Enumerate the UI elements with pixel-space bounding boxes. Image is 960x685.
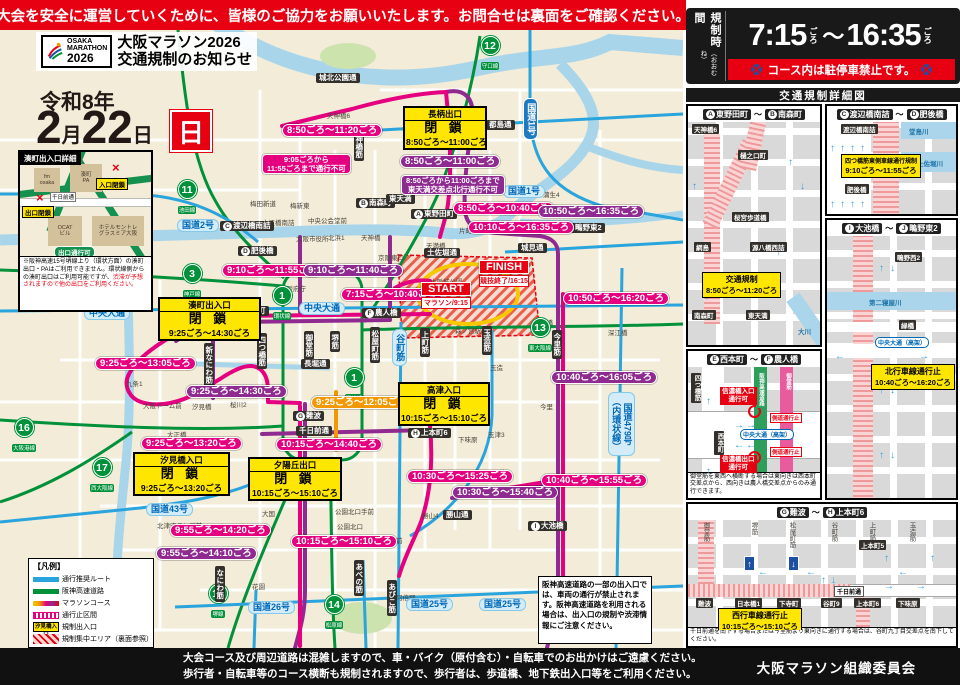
detail-card-namba-uehommachi: G難波～H上本町6 ↑ ↓ 御堂筋堺筋松屋町筋谷町筋上町筋玉造筋上本町5千日前通… — [686, 502, 958, 648]
time-badge: 10:50ごろ～16:20ごろ — [563, 292, 669, 305]
route-shield-name: 守口線 — [481, 62, 500, 70]
minor-place-label: 大阪ドーム前 — [143, 400, 182, 410]
minor-place-label: 下味原 — [458, 434, 478, 444]
route-shield-number: 1 — [345, 368, 364, 387]
road-name-label: 都島通 — [486, 120, 515, 130]
route-shield-11: 11池田線 — [175, 180, 199, 217]
closure-box-汐見橋入口: 汐見橋入口閉 鎖9:25ごろ～13:20ごろ — [133, 452, 230, 496]
point-mark-C: C — [223, 222, 232, 231]
card-note: 千日前通を南下する場合または今里筋より東向きに通行する場合は、谷町九丁目交差点を… — [688, 627, 956, 646]
road-name-label: 千日前通 — [296, 426, 332, 436]
regulation-time-label: 規制時間 （おおむね） — [689, 11, 726, 81]
road-name-label: H上本町6 — [408, 428, 451, 438]
route-shield-16: 16大阪港線 — [12, 418, 36, 455]
expressway-note: 阪神高速道路の一部の出入口では、車両の通行が禁止されます。阪神高速道路を利用され… — [538, 576, 652, 644]
direction-arrow-icon: ↑ — [930, 554, 935, 564]
minor-place-label: 梅田新道 — [250, 198, 276, 208]
minatomachi-inset: fm osaka 湊町 PA OCAT ビル ホテルモントレ グラスミア大阪 ×… — [18, 150, 153, 312]
regulation-title: 交通規制 — [706, 274, 777, 285]
road-name-label: D肥後橋 — [238, 246, 277, 256]
direction-arrow-icon: → — [919, 352, 929, 362]
route-shield-number: 17 — [93, 458, 112, 477]
route-shield-number: 12 — [481, 36, 500, 55]
direction-arrow-icon: ↑ — [692, 182, 697, 192]
detail-card-map: 四つ橋筋西本町阪神高速道路御堂筋信濃橋入口 通行可信濃橋出口 通行可側道通行止側… — [688, 367, 820, 476]
closure-time: 9:25ごろ～14:30ごろ — [160, 327, 259, 339]
restricted-area-swatch — [33, 634, 59, 644]
direction-arrow-icon: → — [916, 582, 926, 592]
time-badge: 10:50ごろ～16:35ごろ — [538, 205, 644, 218]
direction-arrow-icon: ↑ — [879, 451, 884, 461]
road-name-label: 勝山通 — [443, 510, 472, 520]
road-name-label: 城北公園通 — [316, 73, 360, 83]
card-regulation-box: 北行車線通行止10:40ごろ～16:20ごろ — [871, 364, 955, 390]
time-badge: 10:40ごろ～15:55ごろ — [541, 474, 647, 487]
start-marker: START マラソン/9:15 — [421, 282, 471, 309]
closure-time: 9:25ごろ～13:20ごろ — [135, 482, 228, 494]
time-badge: 8:50ごろから11:00ごろまで 東天満交差点北行通行不可 — [401, 175, 505, 195]
road-name-label: 堺筋 — [330, 331, 340, 352]
minor-place-label: 玉津3 — [488, 429, 505, 439]
direction-arrow-icon: ← — [746, 441, 756, 451]
time-badge: 9:10ごろ～11:40ごろ — [303, 264, 403, 277]
direction-arrow-icon: ← — [898, 568, 908, 578]
card-label: 肥後橋 — [845, 184, 869, 194]
route-name-label: 谷町筋 — [392, 329, 407, 366]
route-shield-17: 17西大阪線 — [90, 458, 114, 495]
direction-arrow-icon: ↓ — [890, 264, 895, 274]
route-shield-1: 1環状線 — [270, 286, 294, 323]
minor-place-label: 深江橋 — [608, 327, 628, 337]
direction-arrow-icon: ← — [734, 441, 744, 451]
road-name-label: 長堀通 — [301, 359, 330, 369]
direction-arrow-icon: ↓ — [890, 451, 895, 461]
detail-card-map: ↑ ↓ 御堂筋堺筋松屋町筋谷町筋上町筋玉造筋上本町5千日前通難波日本橋1下寺町谷… — [688, 520, 956, 630]
card-label: 四つ橋筋 — [691, 373, 701, 403]
card-label: 中央大通（高架） — [875, 337, 929, 348]
point-mark-D: D — [241, 247, 250, 256]
road-name-label: 新なにわ筋 — [204, 343, 214, 387]
direction-arrow-icon: ↓ — [800, 182, 805, 192]
legend-item: マラソンコース — [33, 598, 149, 608]
recommended-route-swatch — [33, 577, 59, 582]
direction-arrow-icon: ↑ — [850, 144, 855, 154]
finish-marker: FINISH 競技終了/16:15 — [479, 260, 529, 287]
regulation-time-panel: 規制時間 （おおむね） 7:15ごろ～16:35ごろ コース内は駐停車禁止です。 — [686, 8, 960, 84]
time-badge: 10:10ごろ～16:35ごろ — [468, 221, 574, 234]
closure-box-長柄出口: 長柄出口閉 鎖8:50ごろ～11:00ごろ — [403, 106, 487, 150]
card-label: 御堂筋 — [783, 371, 793, 392]
detail-card-watanabebashi-higobashi: C渡辺橋南詰～D肥後橋 渡辺橋南詰堂島川土佐堀川肥後橋↑↑↑↑↑↑↑↑四つ橋筋東… — [825, 104, 958, 216]
card-label: 信濃橋入口 通行可 — [720, 387, 757, 405]
direction-arrow-icon: → — [884, 582, 894, 592]
legend-item: 阪神高速道路 — [33, 586, 149, 596]
date-month-unit: 月 — [62, 122, 82, 150]
closure-time: 10:15ごろ～15:10ごろ — [250, 487, 340, 499]
regulation-time-value: 7:15ごろ～16:35ごろ — [726, 11, 957, 59]
time-badge: 9:25ごろ～14:30ごろ — [186, 385, 287, 398]
route-shield-number: 1 — [273, 286, 292, 305]
page-title-line1: 大阪マラソン2026 — [117, 34, 252, 51]
closure-status: 閉 鎖 — [250, 472, 340, 487]
direction-arrow-icon: ← — [835, 352, 845, 362]
route-shield-number: 3 — [183, 264, 202, 283]
page-header: OSAKA MARATHON 2026 大阪マラソン2026 交通規制のお知らせ — [36, 32, 257, 71]
route-name-label: 国道1号 — [523, 98, 538, 140]
inset-exit-closed: 出口閉鎖 — [22, 206, 54, 218]
card-label: 鴫野西2 — [895, 252, 922, 262]
time-badge: 10:40ごろ～16:05ごろ — [551, 371, 657, 384]
route-shield-name: 西大阪線 — [90, 484, 114, 492]
minor-place-label: 花園 — [252, 581, 265, 591]
detail-card-map: 天神橋6樋之口町桜宮歩道橋網島源八橋西詰南森町東天満大川↑↑↓↑↓交通規制8:5… — [688, 122, 820, 345]
closure-status: 閉 鎖 — [400, 397, 488, 412]
time-badge: 10:30ごろ～15:25ごろ — [407, 470, 513, 483]
card-label: 下寺町 — [777, 598, 801, 608]
point-mark-G: G — [296, 412, 305, 421]
route-shield-name: 堺線 — [211, 610, 224, 618]
minor-place-label: 勝山4 — [422, 510, 439, 520]
entrance-closed-x-icon: × — [112, 160, 120, 175]
closure-time: 10:15ごろ～15:10ごろ — [400, 412, 488, 424]
time-badge: 10:15ごろ～14:40ごろ — [276, 438, 382, 451]
organizer-name: 大阪マラソン組織委員会 — [757, 657, 917, 677]
card-label: 阪神高速道路 — [756, 371, 766, 408]
route-name-label: 国道1号 — [503, 185, 545, 198]
route-name-label: 中央大通 — [299, 302, 345, 315]
road-name-label: 城見通 — [518, 243, 547, 253]
card-label: 緑橋 — [899, 320, 916, 330]
card-label: 樋之口町 — [738, 150, 768, 160]
card-label: 上本町6 — [854, 598, 881, 608]
route-shield-number: 13 — [531, 318, 550, 337]
card-label: 堂島川 — [909, 126, 929, 136]
detail-card-nishihommachi-noninbashi: E西本町～F農人橋 四つ橋筋西本町阪神高速道路御堂筋信濃橋入口 通行可信濃橋出口… — [686, 349, 822, 500]
route-name-label: 国道43号 — [146, 503, 193, 516]
minor-place-label: 北浜1 — [328, 232, 345, 242]
road-name-label: 土佐堀通 — [424, 248, 460, 258]
time-badge: 10:30ごろ～15:40ごろ — [452, 486, 558, 499]
time-badge: 9:25ごろ～13:05ごろ — [95, 357, 196, 370]
route-shield-name: 大阪港線 — [12, 444, 36, 452]
inset-title: 湊町出入口詳細 — [20, 152, 81, 165]
route-name-label: 国道479号 （内環状線） — [608, 392, 635, 456]
card-label: 側道通行止 — [770, 413, 802, 423]
direction-arrow-icon: ↑ — [830, 200, 835, 210]
closure-status: 閉 鎖 — [135, 467, 228, 482]
time-badge: 9:25ごろ～13:20ごろ — [141, 437, 242, 450]
one-way-down-sign: ↓ — [788, 556, 799, 571]
time-badge: 8:50ごろ～11:00ごろ — [400, 155, 500, 168]
time-label-approx: （おおむね） — [697, 50, 717, 80]
route-shield-number: 16 — [15, 418, 34, 437]
main-map: 12守口線11池田線3神戸線1環状線1環状線13東大阪線16大阪港線17西大阪線… — [0, 30, 683, 648]
legend-item: 通行推奨ルート — [33, 574, 149, 584]
inset-hotel: ホテルモントレ グラスミア大阪 — [92, 216, 144, 246]
inset-fm-osaka: fm osaka — [34, 168, 60, 192]
minor-place-label: 京阪東口 — [378, 252, 404, 262]
point-mark-A: A — [414, 210, 423, 219]
direction-arrow-icon: ↑ — [879, 264, 884, 274]
card-label: 松屋町筋 — [786, 522, 796, 548]
finish-label: FINISH — [479, 260, 529, 274]
minor-place-label: 天神橋6 — [327, 110, 350, 120]
direction-arrow-icon: ↑ — [860, 144, 865, 154]
regulation-time: 10:15ごろ～15:10ごろ — [722, 621, 798, 630]
road-name-label: C渡辺橋南詰 — [220, 221, 274, 231]
card-label: 難波 — [696, 598, 713, 608]
minor-place-label: 今里 — [540, 401, 553, 411]
footer-line2: 歩行者・自転車等のコース横断も規制されますので、歩行者は、歩道橋、地下鉄出入口等… — [183, 667, 702, 683]
route-shield-number: 14 — [325, 595, 344, 614]
detail-card-map: 渡辺橋南詰堂島川土佐堀川肥後橋↑↑↑↑↑↑↑↑四つ橋筋東側車線通行規制9:10ご… — [827, 122, 956, 214]
time-badge: 9:55ごろ～14:10ごろ — [156, 547, 257, 560]
road-name-label: F農人橋 — [362, 308, 401, 318]
card-label: 谷町筋 — [828, 522, 838, 542]
logo-osaka: OSAKA — [67, 38, 107, 45]
card-label: 西本町 — [714, 431, 724, 455]
closure-box-高津入口: 高津入口閉 鎖10:15ごろ～15:10ごろ — [398, 382, 490, 426]
card-regulation-box: 交通規制8:50ごろ～11:20ごろ — [702, 272, 781, 298]
minor-place-label: 公園北口手前 — [335, 506, 374, 516]
footer-line1: 大会コース及び周辺道路は混雑しますので、車・バイク（原付含む）・自転車でのお出か… — [183, 651, 702, 667]
expressway-swatch — [33, 589, 59, 594]
direction-arrow-icon: ↑ — [850, 200, 855, 210]
point-mark-I: I — [531, 522, 540, 531]
minor-place-label: 玉造 — [490, 362, 503, 372]
road-name-label: A東野田町 — [411, 209, 457, 219]
route-shield-name: 松原線 — [325, 621, 344, 629]
card-label: 谷町9 — [821, 598, 842, 608]
closed-section-swatch — [33, 612, 59, 619]
no-parking-icon — [919, 62, 934, 77]
exit-closed-x-icon: × — [36, 190, 44, 205]
road-name-label: G難波 — [293, 411, 324, 421]
marathon-course-swatch — [33, 601, 59, 606]
route-shield-name: 環状線 — [273, 312, 292, 320]
weekday-badge: 日 — [170, 110, 212, 152]
one-way-up-sign: ↑ — [744, 556, 755, 571]
inset-senichimae-label: 千日前通 — [50, 192, 76, 202]
top-banner: 大会を安全に運営していくために、皆様のご協力をお願いいたします。お問合せは裏面を… — [0, 0, 686, 30]
closure-box-湊町出入口: 湊町出入口閉 鎖9:25ごろ～14:30ごろ — [158, 297, 261, 341]
road-name-label: 今里筋 — [552, 330, 562, 359]
minor-place-label: 公園北口 — [337, 521, 363, 531]
card-label: 網島 — [694, 242, 711, 252]
road-name-label: 松屋町筋 — [370, 327, 380, 363]
legend-item: 通行止区間 — [33, 610, 149, 620]
minor-place-label: 天神橋 — [361, 232, 381, 242]
regulated-gate-swatch: 汐見橋入口 — [33, 622, 59, 632]
inset-ocat: OCAT ビル — [48, 216, 82, 246]
point-mark-B: B — [359, 199, 368, 208]
minor-place-label: 桜川2 — [230, 399, 247, 409]
direction-arrow-icon: ↑ — [840, 200, 845, 210]
card-label: 日本橋1 — [735, 598, 762, 608]
minor-place-label: 九条1 — [126, 378, 143, 388]
closure-status: 閉 鎖 — [405, 121, 485, 136]
card-label: 側道通行止 — [770, 447, 802, 457]
detail-card-higashinodamachi-minamimorimachi: A東野田町～B南森町 天神橋6樋之口町桜宮歩道橋網島源八橋西詰南森町東天満大川↑… — [686, 104, 822, 347]
time-label-main: 規制時間 — [691, 12, 723, 49]
road-name-label: I大池橋 — [528, 521, 567, 531]
direction-arrow-icon: ↑ — [821, 576, 826, 586]
point-mark-F: F — [365, 309, 374, 318]
no-parking-strip: コース内は駐停車禁止です。 — [728, 59, 955, 80]
direction-arrow-icon: ↑ — [706, 467, 711, 476]
card-label: 御堂筋 — [700, 522, 710, 542]
direction-arrow-icon: ↑ — [830, 144, 835, 154]
road-name-label: 御堂筋 — [304, 331, 314, 360]
road-name-label: 上町筋 — [420, 328, 430, 357]
point-mark-H: H — [411, 429, 420, 438]
direction-arrow-icon: ↑ — [840, 144, 845, 154]
time-badge: 9:05ごろから 11:55ごろまで通行不可 — [262, 154, 351, 174]
page-title-line2: 交通規制のお知らせ — [117, 51, 252, 68]
card-label: 下味原 — [896, 598, 920, 608]
card-label: 南森町 — [692, 310, 716, 320]
card-label: 上本町5 — [859, 540, 886, 550]
marathon-runner-icon — [46, 42, 64, 60]
route-name-label: 国道25号 — [406, 598, 453, 611]
card-label: 第二寝屋川 — [869, 297, 902, 307]
card-label: 中央大通（高架） — [740, 429, 794, 440]
minor-place-label: 大国 — [262, 508, 275, 518]
regulation-title: 四つ橋筋東側車線通行規制 — [845, 156, 917, 165]
start-label: START — [421, 282, 471, 296]
direction-arrow-icon: ← — [806, 568, 816, 578]
inset-map: fm osaka 湊町 PA OCAT ビル ホテルモントレ グラスミア大阪 ×… — [20, 152, 151, 256]
route-shield-name: 東大阪線 — [528, 344, 552, 352]
no-parking-icon — [749, 62, 764, 77]
card-label: 堺筋 — [748, 522, 758, 535]
road-name-label: あべの筋 — [354, 560, 364, 596]
regulation-time: 8:50ごろ～11:20ごろ — [706, 285, 777, 296]
route-shield-3: 3神戸線 — [180, 264, 204, 301]
direction-arrow-icon: ↑ — [788, 158, 793, 168]
time-badge: 9:25ごろ～12:05ごろ — [311, 396, 412, 409]
route-shield-name: 池田線 — [178, 206, 197, 214]
direction-arrow-icon: ↑ — [860, 200, 865, 210]
minor-place-label: 大阪市役所 — [296, 233, 329, 243]
route-shield-12: 12守口線 — [478, 36, 502, 73]
route-name-label: 国道26号 — [248, 601, 295, 614]
legend-item: 汐見橋入口規制出入口 — [33, 622, 149, 632]
road-name-label: 玉造筋 — [482, 326, 492, 355]
card-label: 玉造筋 — [906, 522, 916, 542]
road-name-label: 東天満 — [386, 194, 415, 204]
detail-card-map: 鴫野西2第二寝屋川緑橋中央大通（高架）↑↓←→↑↓↑↓北行車線通行止10:40ご… — [827, 236, 956, 498]
route-shield-13: 13東大阪線 — [528, 318, 552, 355]
route-name-label: 国道25号 — [479, 598, 526, 611]
route-name-label: 国道2号 — [177, 219, 219, 232]
marathon-logo: OSAKA MARATHON 2026 — [41, 35, 112, 68]
road-name-label: なにわ筋 — [215, 566, 225, 602]
direction-arrow-icon: ↓ — [831, 576, 836, 586]
route-shield-14: 14松原線 — [322, 595, 346, 632]
inset-note: ※阪神高速15号堺線上り（環状方面）の湊町出口・PAはご利用できません。環状線側… — [20, 256, 151, 310]
start-time: マラソン/9:15 — [421, 297, 471, 309]
inset-entrance-closed: 入口閉鎖 — [96, 178, 128, 190]
time-badge: 10:15ごろ～15:10ごろ — [291, 535, 397, 548]
regulation-title: 西行車線通行止 — [722, 610, 798, 621]
legend-item: 規制集中エリア（裏面参照） — [33, 634, 149, 644]
minor-place-label: 蒲生4 — [543, 189, 560, 199]
minor-place-label: 汐見橋 — [192, 401, 212, 411]
regulation-title: 北行車線通行止 — [875, 366, 951, 377]
card-label: 桜宮歩道橋 — [732, 212, 769, 222]
direction-arrow-icon: ↑ — [884, 554, 889, 564]
legend: 【凡例】 通行推奨ルート 阪神高速道路 マラソンコース 通行止区間 汐見橋入口規… — [28, 558, 154, 648]
closure-box-夕陽丘出口: 夕陽丘出口閉 鎖10:15ごろ～15:10ごろ — [248, 457, 342, 501]
card-label: 上町筋 — [866, 522, 876, 542]
card-label: 東天満 — [746, 310, 770, 320]
date-month: 2 — [36, 106, 62, 150]
detail-map-title: 交通規制詳細図 — [686, 88, 960, 102]
road-name-label: あびこ筋 — [387, 580, 397, 616]
closure-time: 8:50ごろ～11:00ごろ — [405, 136, 485, 148]
no-parking-text: コース内は駐停車禁止です。 — [768, 62, 916, 78]
regulation-time: 10:40ごろ～16:20ごろ — [875, 377, 951, 388]
inset-exit-open: 出口通行可 — [54, 246, 95, 256]
closure-status: 閉 鎖 — [160, 312, 259, 327]
finish-time: 競技終了/16:15 — [479, 275, 529, 287]
route-shield-number: 11 — [178, 180, 197, 199]
minor-place-label: 梅新東 — [290, 200, 310, 210]
logo-year: 2026 — [67, 52, 107, 65]
card-label: 天神橋6 — [692, 124, 719, 134]
date-day: 22 — [82, 106, 133, 150]
card-label: 渡辺橋南詰 — [841, 124, 878, 134]
event-date: 2月22日 — [36, 106, 153, 150]
date-day-unit: 日 — [133, 122, 153, 150]
card-regulation-box: 西行車線通行止10:15ごろ～15:10ごろ — [718, 608, 802, 630]
card-label: 信濃橋出口 通行可 — [720, 455, 757, 473]
card-regulation-box: 四つ橋筋東側車線通行規制9:10ごろ～11:55ごろ — [841, 154, 921, 178]
card-label: 大川 — [798, 326, 811, 336]
legend-title: 【凡例】 — [33, 561, 149, 572]
bottom-notice-bar: 大会コース及び周辺道路は混雑しますので、車・バイク（原付含む）・自転車でのお出か… — [0, 648, 960, 685]
direction-arrow-icon: ← — [758, 568, 768, 578]
direction-arrow-icon: ↑ — [706, 397, 711, 407]
card-label: 源八橋西詰 — [750, 242, 787, 252]
regulation-time: 9:10ごろ～11:55ごろ — [845, 165, 917, 176]
minor-place-label: 中央公会堂前 — [308, 215, 347, 225]
card-label: 千日前通 — [834, 586, 864, 597]
time-badge: 9:55ごろ～14:20ごろ — [170, 524, 271, 537]
time-badge: 8:50ごろ～11:20ごろ — [282, 124, 382, 137]
detail-card-oikebashi-shiginohigashi: I大池橋～J鴫野東2 鴫野西2第二寝屋川緑橋中央大通（高架）↑↓←→↑↓↑↓北行… — [825, 218, 958, 500]
